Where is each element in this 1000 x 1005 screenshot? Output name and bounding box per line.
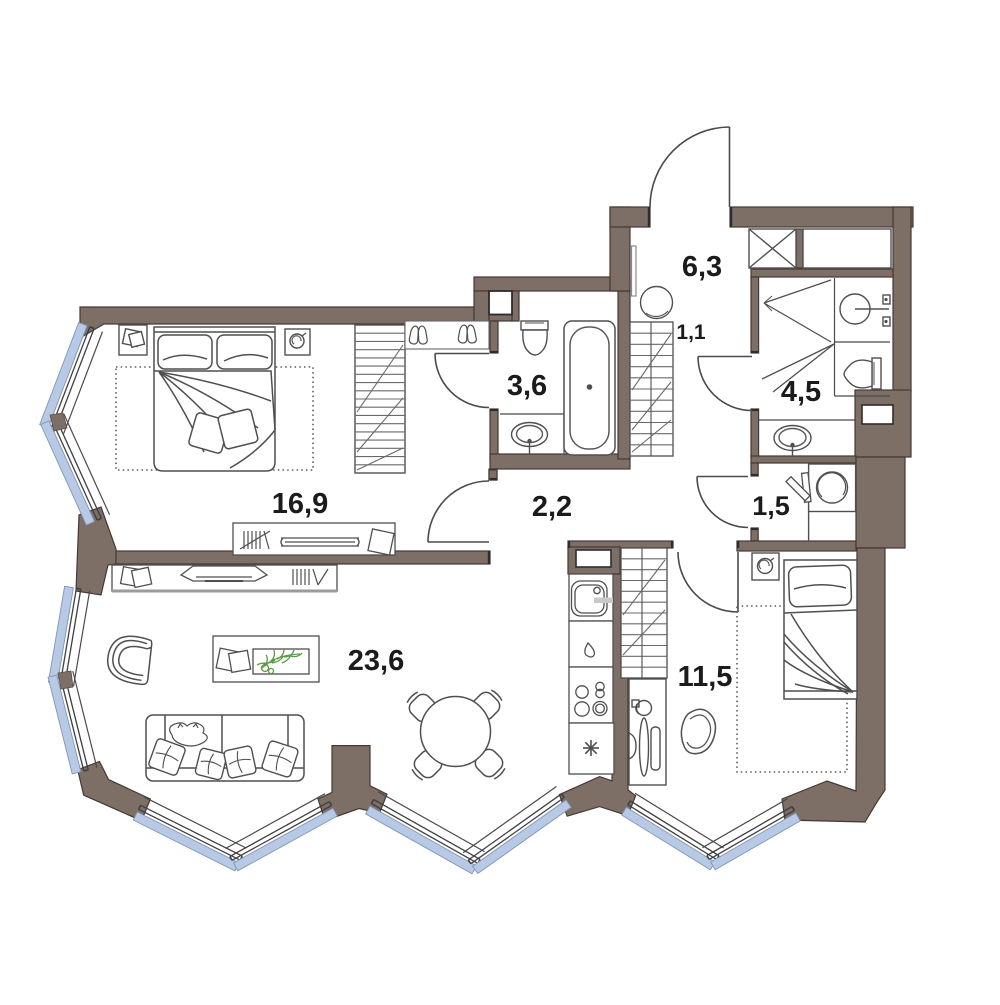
svg-text:23,6: 23,6 xyxy=(348,645,404,677)
svg-text:6,3: 6,3 xyxy=(682,251,722,283)
svg-text:1,1: 1,1 xyxy=(676,321,706,344)
svg-text:3,6: 3,6 xyxy=(507,370,547,402)
svg-text:11,5: 11,5 xyxy=(678,661,733,693)
svg-text:2,2: 2,2 xyxy=(532,491,572,523)
svg-text:16,9: 16,9 xyxy=(272,488,328,520)
svg-text:4,5: 4,5 xyxy=(781,376,821,408)
svg-text:1,5: 1,5 xyxy=(752,491,790,521)
